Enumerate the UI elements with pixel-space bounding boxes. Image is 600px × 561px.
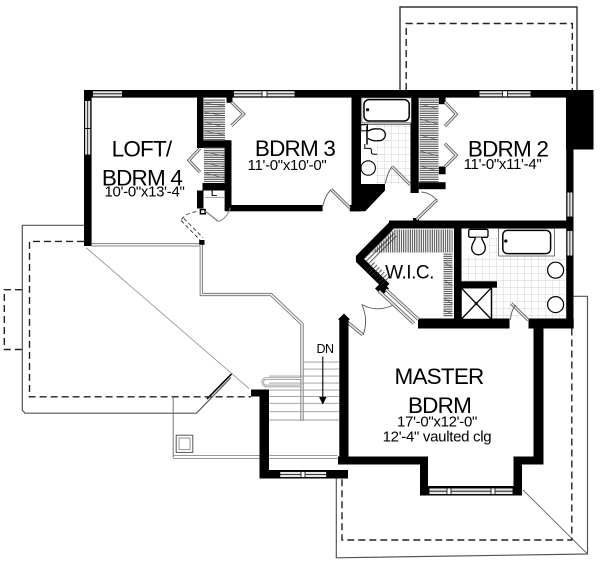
svg-text:11'-0"x11'-4": 11'-0"x11'-4": [464, 156, 542, 173]
svg-text:12'-4" vaulted clg: 12'-4" vaulted clg: [383, 429, 492, 446]
svg-text:L: L: [211, 185, 218, 199]
svg-text:DN: DN: [316, 342, 334, 356]
svg-text:10'-0"x13'-4": 10'-0"x13'-4": [104, 184, 184, 201]
svg-text:W.I.C.: W.I.C.: [385, 263, 434, 284]
svg-text:MASTER: MASTER: [395, 364, 485, 389]
svg-text:LOFT/: LOFT/: [112, 137, 173, 162]
svg-text:11'-0"x10'-0": 11'-0"x10'-0": [248, 157, 327, 174]
